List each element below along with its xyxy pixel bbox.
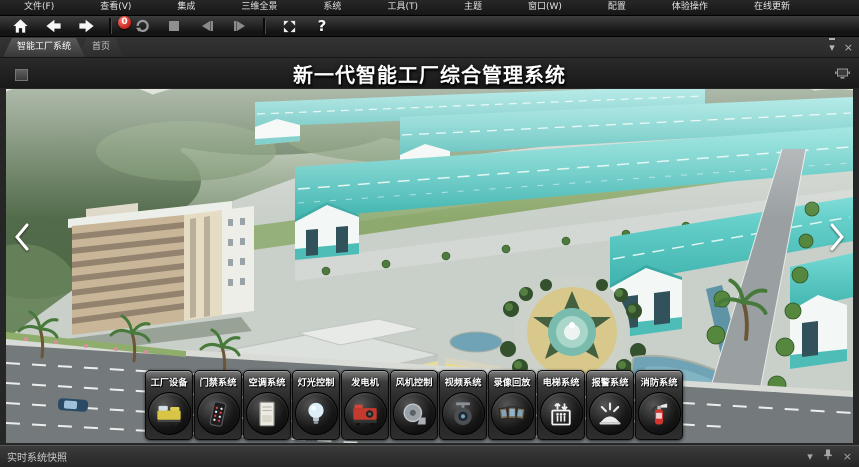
chevron-right-icon [828, 222, 846, 252]
fullscreen-icon [282, 19, 297, 34]
dock-tile-icon [540, 392, 583, 435]
step-back-button[interactable] [193, 16, 221, 36]
page-title: 新一代智能工厂综合管理系统 [293, 59, 566, 88]
home-icon [12, 18, 29, 34]
panel-dropdown-button[interactable]: ▾ [807, 449, 813, 464]
toolbar: 0 [0, 15, 859, 37]
alarm-count-badge: 0 [118, 16, 131, 29]
menu-view[interactable]: 查看(V) [98, 0, 133, 15]
stop-button[interactable] [160, 16, 188, 36]
menu-integration[interactable]: 集成 [175, 0, 197, 15]
menu-config[interactable]: 配置 [606, 0, 628, 15]
menu-item-label: 在线更新 [754, 2, 790, 12]
dock-tile-icon [589, 392, 632, 435]
dock-alarm-system[interactable]: 报警系统 [586, 370, 634, 440]
dock-access-control[interactable]: 门禁系统 [194, 370, 242, 440]
dock-tile-icon [344, 392, 387, 435]
menu-item-label: 体验操作 [672, 2, 708, 12]
dock-tile-icon [148, 392, 191, 435]
dock-tile-label: 工厂设备 [151, 375, 188, 389]
menu-system[interactable]: 系统 [321, 0, 343, 15]
dock-tile-label: 电梯系统 [543, 375, 580, 389]
menu-tools[interactable]: 工具(T) [385, 0, 420, 15]
dock-fan-control[interactable]: 风机控制 [390, 370, 438, 440]
menu-theme[interactable]: 主题 [462, 0, 484, 15]
menu-experience[interactable]: 体验操作 [670, 0, 710, 15]
tab-label: 首页 [92, 42, 110, 52]
scene-prev-button[interactable] [10, 221, 34, 253]
tab-close-button[interactable]: × [844, 40, 853, 55]
tab-home[interactable]: 首页 [78, 38, 124, 57]
dock-tile-label: 报警系统 [592, 375, 629, 389]
subsystem-dock: 工厂设备 门禁系统 空调系统 [145, 370, 683, 440]
forward-button[interactable] [72, 16, 100, 36]
dock-tile-label: 空调系统 [249, 375, 286, 389]
dock-video-playback[interactable]: 录像回放 [488, 370, 536, 440]
dock-elevator-system[interactable]: 电梯系统 [537, 370, 585, 440]
dock-tile-icon [246, 392, 289, 435]
chevron-left-icon [13, 222, 31, 252]
dock-factory-equipment[interactable]: 工厂设备 [145, 370, 193, 440]
fullscreen-button[interactable] [275, 16, 303, 36]
alarm-refresh-button[interactable]: 0 [121, 16, 155, 36]
panel-close-button[interactable]: × [843, 449, 852, 464]
tab-strip: 智能工厂系统 首页 [3, 38, 117, 57]
menu-online-update[interactable]: 在线更新 [752, 0, 792, 15]
tab-smart-factory-system[interactable]: 智能工厂系统 [3, 38, 85, 57]
dock-generator[interactable]: 发电机 [341, 370, 389, 440]
step-back-icon [199, 19, 215, 33]
dock-tile-label: 消防系统 [641, 375, 678, 389]
close-icon: × [844, 41, 853, 54]
app-window: 文件(F) 查看(V) 集成 三维全景 系统 工具(T) 主题 [0, 0, 859, 467]
menu-item-label: 系统 [323, 2, 341, 12]
menu-item-label: 三维全景 [241, 2, 277, 12]
tab-list-dropdown-button[interactable]: ▾ [829, 40, 835, 55]
screen-snapshot-icon [835, 67, 850, 80]
factory-scene[interactable]: 工厂设备 门禁系统 空调系统 [6, 89, 853, 443]
step-forward-icon [232, 19, 248, 33]
status-text: 实时系统快照 [7, 449, 67, 464]
toolbar-separator [109, 18, 112, 34]
menu-bar: 文件(F) 查看(V) 集成 三维全景 系统 工具(T) 主题 [0, 0, 859, 15]
dock-hvac-system[interactable]: 空调系统 [243, 370, 291, 440]
scene-viewport[interactable]: 工厂设备 门禁系统 空调系统 [0, 88, 859, 445]
status-bar: 实时系统快照 ▾ × [0, 445, 859, 467]
dock-tile-icon [638, 392, 681, 435]
menu-item-label: 窗口(W) [528, 2, 562, 12]
help-icon: ? [318, 17, 327, 35]
dock-tile-icon [295, 392, 338, 435]
help-button[interactable]: ? [308, 16, 336, 36]
scene-next-button[interactable] [825, 221, 849, 253]
dock-fire-system[interactable]: 消防系统 [635, 370, 683, 440]
status-bar-controls: ▾ × [807, 449, 852, 464]
panel-dropdown-icon: ▾ [807, 450, 813, 463]
close-icon: × [843, 450, 852, 463]
tab-label: 智能工厂系统 [17, 42, 71, 52]
tab-bar-controls: ▾ × [829, 40, 853, 55]
dock-tile-icon [491, 392, 534, 435]
step-forward-button[interactable] [226, 16, 254, 36]
dock-tile-label: 门禁系统 [200, 375, 237, 389]
menu-item-label: 查看(V) [100, 2, 131, 12]
pin-icon [823, 449, 833, 460]
menu-item-label: 文件(F) [24, 2, 54, 12]
menu-item-label: 主题 [464, 2, 482, 12]
dock-tile-label: 录像回放 [494, 375, 531, 389]
dock-tile-label: 发电机 [351, 375, 379, 389]
menu-window[interactable]: 窗口(W) [526, 0, 564, 15]
menu-item-label: 工具(T) [387, 2, 418, 12]
tab-list-icon: ▾ [829, 38, 835, 54]
snapshot-button[interactable] [834, 66, 850, 80]
menu-item-label: 集成 [177, 2, 195, 12]
menu-file[interactable]: 文件(F) [22, 0, 56, 15]
tab-bar: 智能工厂系统 首页 ▾ × [0, 37, 859, 58]
menu-item-label: 配置 [608, 2, 626, 12]
dock-video-system[interactable]: 视频系统 [439, 370, 487, 440]
arrow-right-icon [77, 18, 96, 34]
title-banner: 新一代智能工厂综合管理系统 [0, 58, 859, 88]
dock-tile-icon [393, 392, 436, 435]
dock-lighting-control[interactable]: 灯光控制 [292, 370, 340, 440]
arrow-left-icon [44, 18, 63, 34]
dock-tile-label: 灯光控制 [298, 375, 335, 389]
panel-collapse-button[interactable] [15, 69, 28, 81]
toolbar-separator [263, 18, 266, 34]
dock-tile-label: 风机控制 [396, 375, 433, 389]
dock-tile-icon [442, 392, 485, 435]
home-button[interactable] [6, 16, 34, 36]
dock-tile-label: 视频系统 [445, 375, 482, 389]
panel-pin-button[interactable] [823, 449, 833, 464]
refresh-loop-icon [134, 18, 151, 34]
dock-tile-icon [197, 392, 240, 435]
back-button[interactable] [39, 16, 67, 36]
stop-icon [167, 19, 181, 33]
menu-3d-panorama[interactable]: 三维全景 [239, 0, 279, 15]
